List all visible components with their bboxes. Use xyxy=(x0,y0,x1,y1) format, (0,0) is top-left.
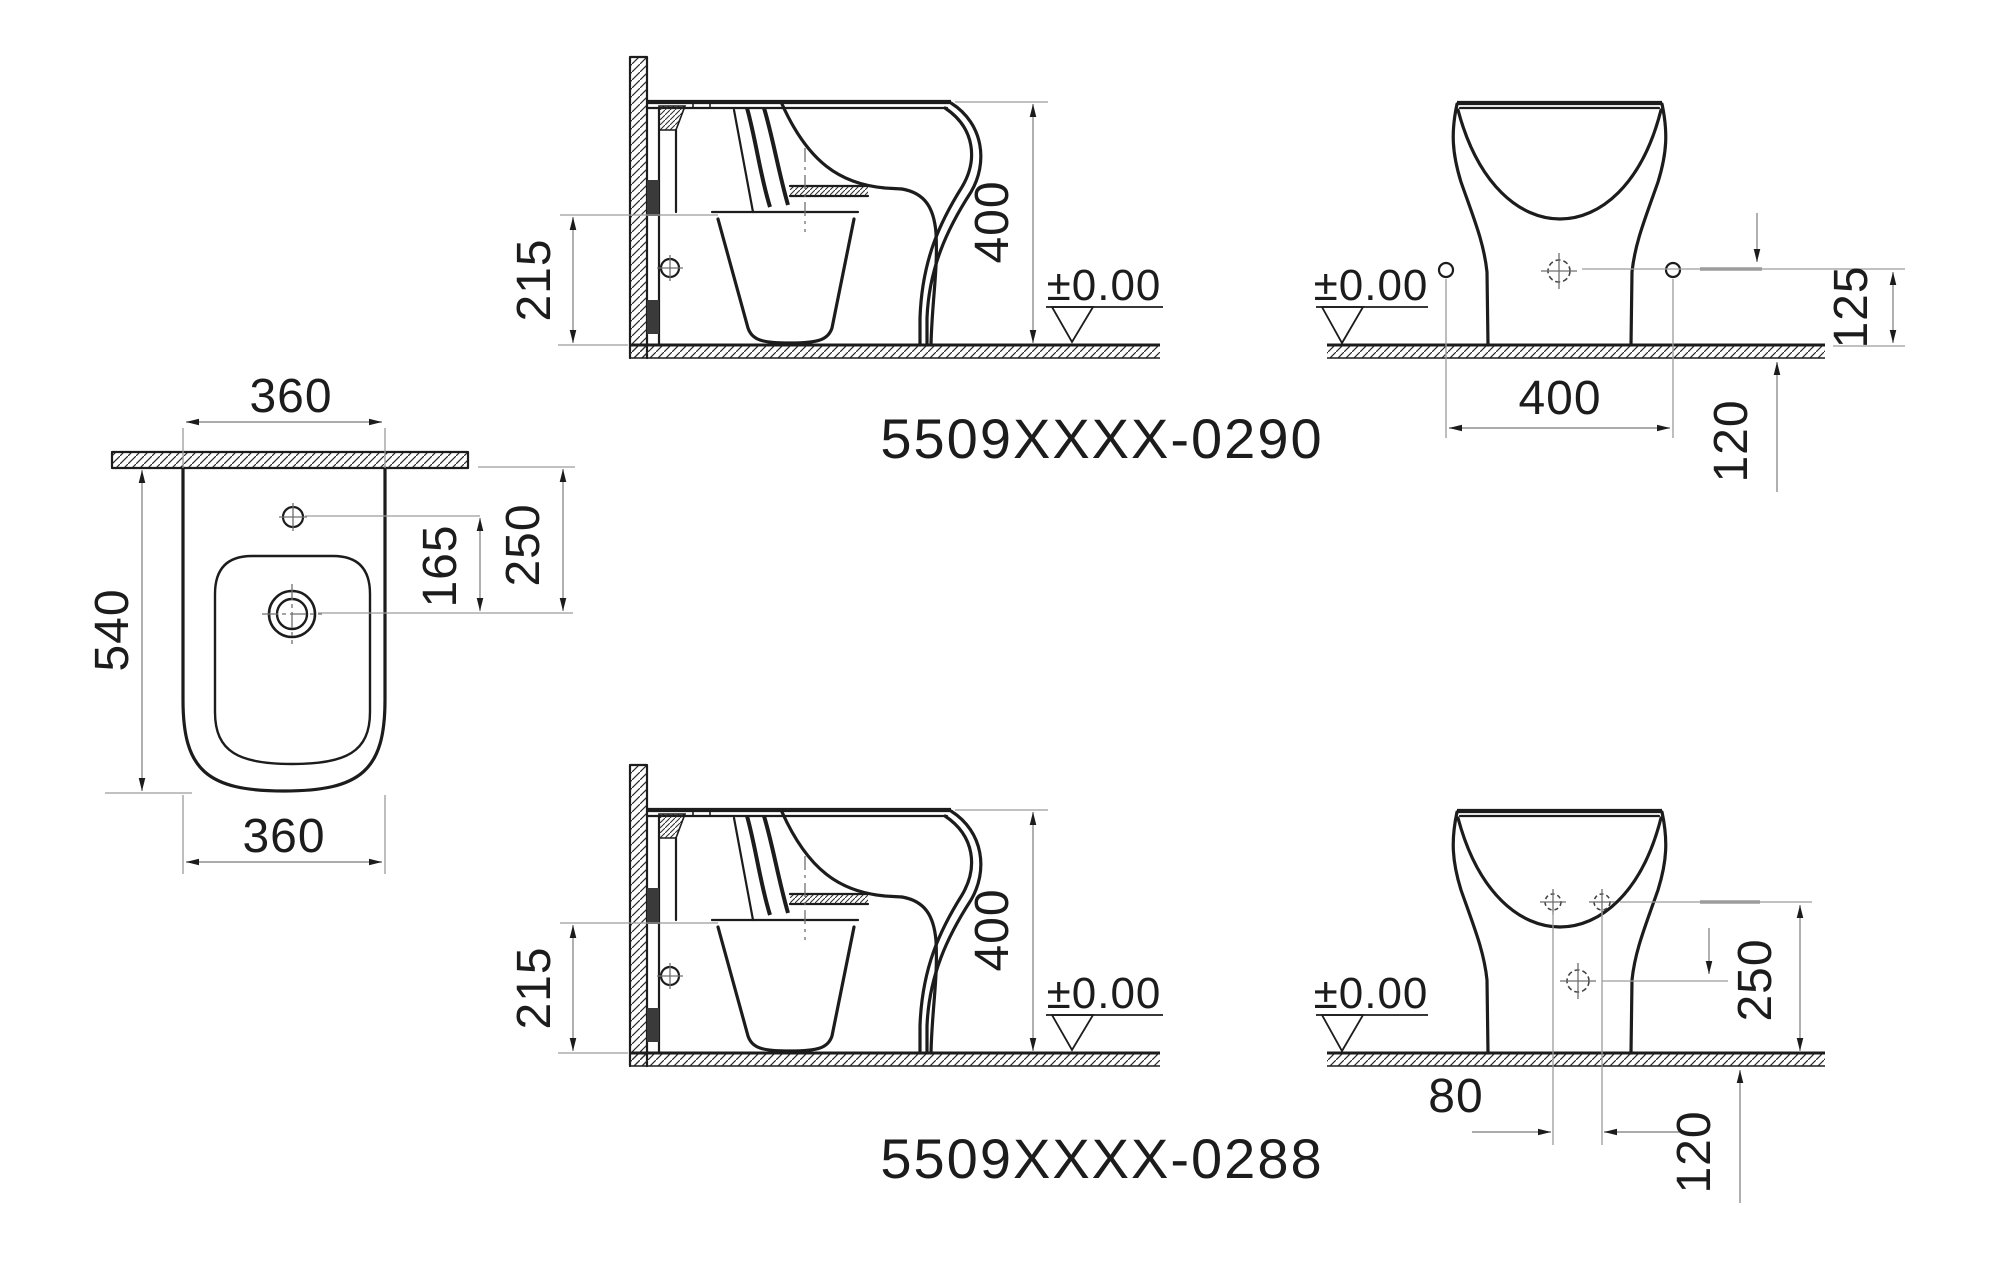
floor-datum-label: ±0.00 xyxy=(1314,969,1429,1018)
product-code-0290: 5509XXXX-0290 xyxy=(880,407,1323,470)
dim-hole-spacing: 80 xyxy=(1428,1070,1483,1123)
center-crosshair xyxy=(1560,963,1596,999)
plan-view: 360 540 165 250 360 xyxy=(86,370,575,874)
drawing-sheet: 360 540 165 250 360 215 400 ±0.00 5509XX… xyxy=(0,0,2000,1263)
dim-bowl-height: 215 xyxy=(508,238,561,321)
side-section-view-0290: 215 400 ±0.00 xyxy=(508,57,1163,358)
floor-datum-label: ±0.00 xyxy=(1047,969,1162,1018)
dim-total-height: 400 xyxy=(966,180,1019,263)
center-crosshair xyxy=(1541,253,1577,289)
top-hole-crosshair-right xyxy=(1589,889,1615,915)
dim-hole-to-drain: 165 xyxy=(414,524,467,607)
dim-depth: 540 xyxy=(86,588,139,671)
side-fixing-hole-left xyxy=(1439,263,1453,277)
dim-hole-spacing: 400 xyxy=(1518,372,1601,425)
dim-outlet-offset: 120 xyxy=(1705,399,1758,482)
side-fixing-hole-right xyxy=(1666,263,1680,277)
floor-datum-label: ±0.00 xyxy=(1047,261,1162,310)
front-view-0288: ±0.00 80 250 120 xyxy=(1314,811,1825,1203)
dim-width-bottom: 360 xyxy=(242,810,325,863)
dim-total-height: 400 xyxy=(966,888,1019,971)
floor-datum-label: ±0.00 xyxy=(1314,261,1429,310)
dim-outlet-offset: 120 xyxy=(1668,1110,1721,1193)
dim-width-top: 360 xyxy=(249,370,332,423)
top-hole-crosshair-left xyxy=(1540,889,1566,915)
tap-hole-crosshair xyxy=(279,503,307,531)
wall-hatch xyxy=(112,452,468,468)
product-code-0288: 5509XXXX-0288 xyxy=(880,1127,1323,1190)
front-view-0290: ±0.00 400 125 120 xyxy=(1314,103,1905,492)
dim-hole-height: 125 xyxy=(1825,265,1878,348)
dim-wall-to-drain: 250 xyxy=(497,503,550,586)
dim-hole-height: 250 xyxy=(1729,938,1782,1021)
drain-crosshair xyxy=(262,584,322,644)
technical-drawing-canvas: 360 540 165 250 360 215 400 ±0.00 5509XX… xyxy=(0,0,2000,1263)
dim-bowl-height: 215 xyxy=(508,946,561,1029)
side-section-view-0288: 215 400 ±0.00 xyxy=(508,765,1163,1066)
